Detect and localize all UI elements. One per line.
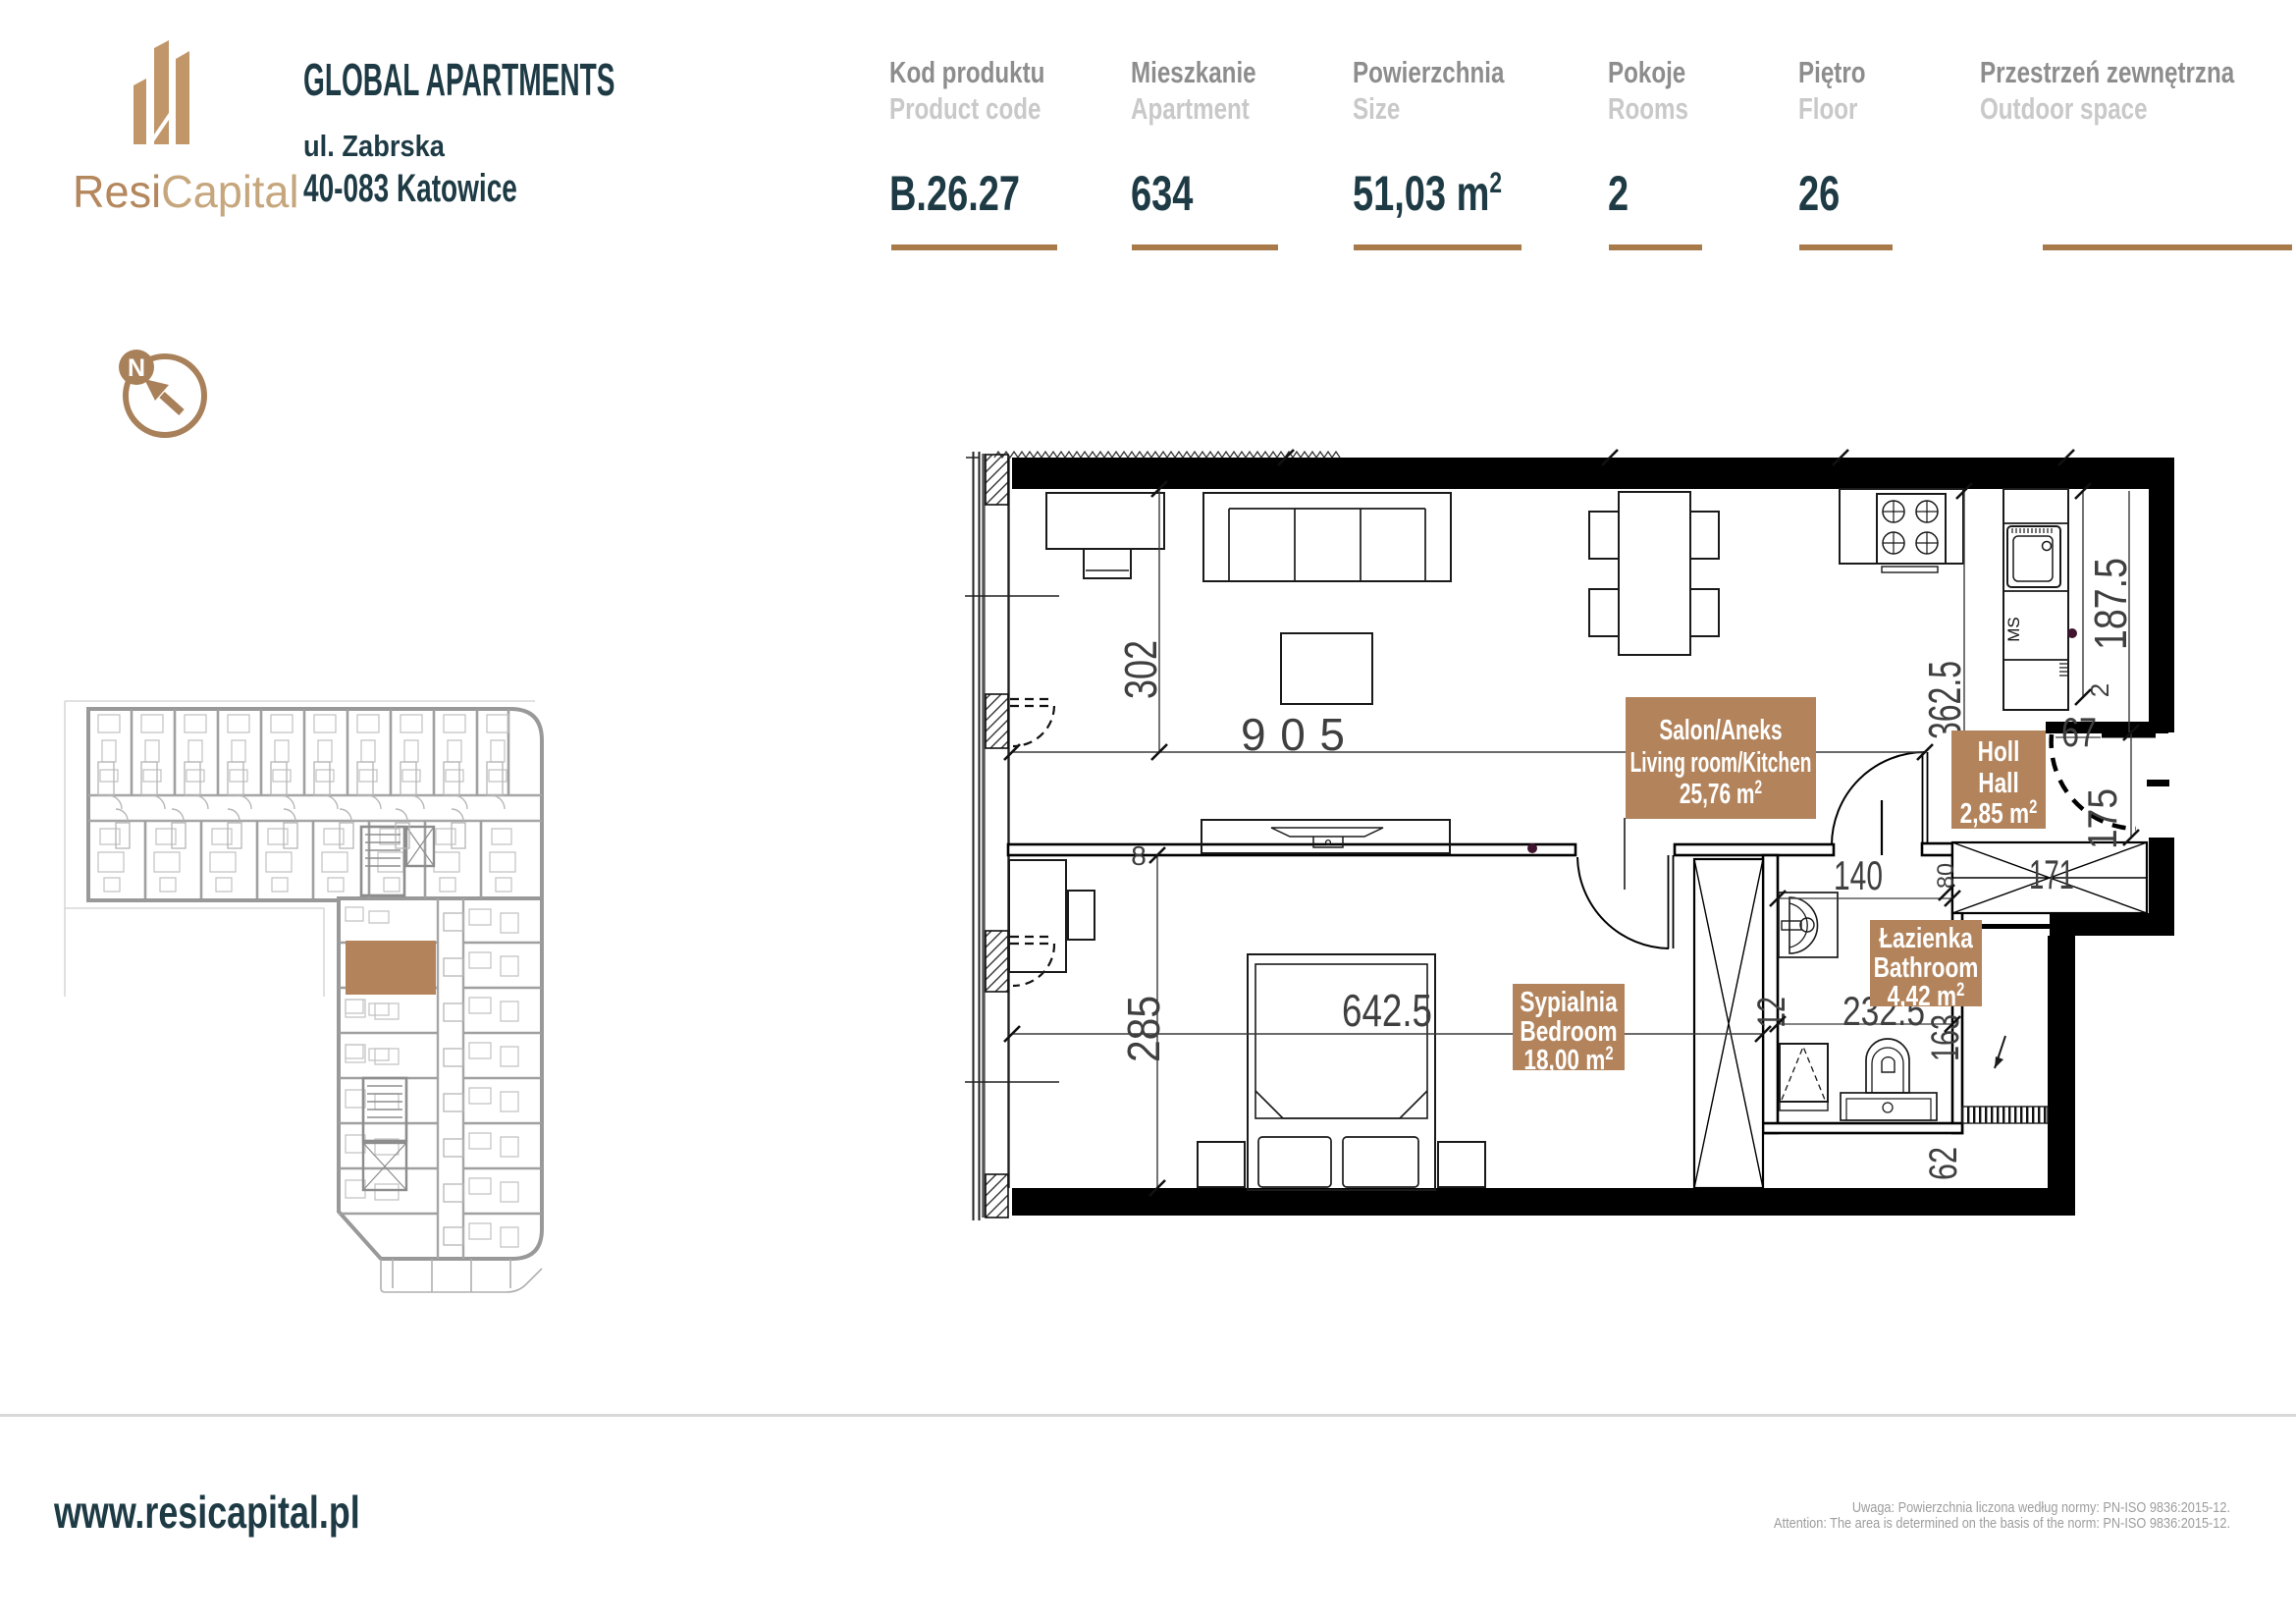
svg-text:634: 634	[1131, 167, 1194, 221]
svg-text:362.5: 362.5	[1919, 661, 1970, 739]
svg-text:140: 140	[1834, 852, 1883, 898]
svg-text:Attention: The area is determi: Attention: The area is determined on the…	[1774, 1514, 2230, 1531]
svg-text:8: 8	[1131, 840, 1147, 871]
svg-text:N: N	[128, 354, 145, 382]
svg-text:Łazienka: Łazienka	[1879, 921, 1973, 953]
svg-text:51,03 m2: 51,03 m2	[1353, 166, 1502, 221]
svg-text:Size: Size	[1353, 91, 1400, 126]
svg-text:Rooms: Rooms	[1608, 91, 1688, 126]
svg-text:2: 2	[1608, 167, 1629, 221]
svg-text:4,42 m2: 4,42 m2	[1888, 979, 1965, 1011]
svg-text:40-083 Katowice: 40-083 Katowice	[303, 167, 517, 210]
svg-text:67: 67	[2061, 709, 2097, 755]
svg-text:62: 62	[1922, 1147, 1965, 1180]
svg-text:ResiCapital: ResiCapital	[73, 167, 298, 218]
svg-text:163: 163	[1924, 1014, 1967, 1061]
svg-text:187.5: 187.5	[2085, 558, 2136, 650]
svg-text:Uwaga: Powierzchnia liczona we: Uwaga: Powierzchnia liczona według normy…	[1852, 1498, 2230, 1515]
svg-text:Sypialnia: Sypialnia	[1520, 985, 1618, 1017]
svg-text:171: 171	[2029, 851, 2074, 897]
svg-text:GLOBAL APARTMENTS: GLOBAL APARTMENTS	[303, 56, 614, 106]
svg-text:Hall: Hall	[1978, 766, 2018, 798]
svg-text:18,00 m2: 18,00 m2	[1523, 1043, 1613, 1075]
svg-text:Piętro: Piętro	[1798, 55, 1865, 89]
svg-text:Mieszkanie: Mieszkanie	[1131, 55, 1256, 89]
svg-text:Floor: Floor	[1798, 91, 1858, 126]
svg-text:Pokoje: Pokoje	[1608, 55, 1685, 89]
svg-text:Salon/Aneks: Salon/Aneks	[1659, 715, 1782, 746]
svg-text:Powierzchnia: Powierzchnia	[1353, 55, 1505, 89]
svg-text:642.5: 642.5	[1342, 985, 1432, 1036]
svg-text:Przestrzeń zewnętrzna: Przestrzeń zewnętrzna	[1980, 55, 2235, 89]
svg-text:Holl: Holl	[1978, 734, 2020, 767]
svg-text:302: 302	[1115, 640, 1166, 699]
svg-text:Outdoor space: Outdoor space	[1980, 91, 2148, 126]
svg-text:80: 80	[1933, 863, 1959, 889]
svg-text:12: 12	[1750, 997, 1793, 1028]
svg-text:B.26.27: B.26.27	[889, 167, 1020, 221]
svg-text:905: 905	[1241, 709, 1345, 760]
svg-text:ul. Zabrska: ul. Zabrska	[303, 130, 446, 163]
svg-text:26: 26	[1798, 167, 1840, 221]
svg-text:Apartment: Apartment	[1131, 91, 1250, 126]
svg-text:www.resicapital.pl: www.resicapital.pl	[53, 1488, 360, 1538]
svg-text:Product code: Product code	[889, 91, 1041, 126]
svg-text:2,85 m2: 2,85 m2	[1960, 796, 2038, 829]
svg-text:25,76 m2: 25,76 m2	[1680, 777, 1762, 810]
svg-text:Kod produktu: Kod produktu	[889, 55, 1044, 89]
svg-text:175: 175	[2079, 788, 2125, 849]
svg-text:285: 285	[1118, 996, 1169, 1062]
svg-text:Living room/Kitchen: Living room/Kitchen	[1630, 747, 1812, 779]
svg-text:MS: MS	[2004, 617, 2023, 642]
